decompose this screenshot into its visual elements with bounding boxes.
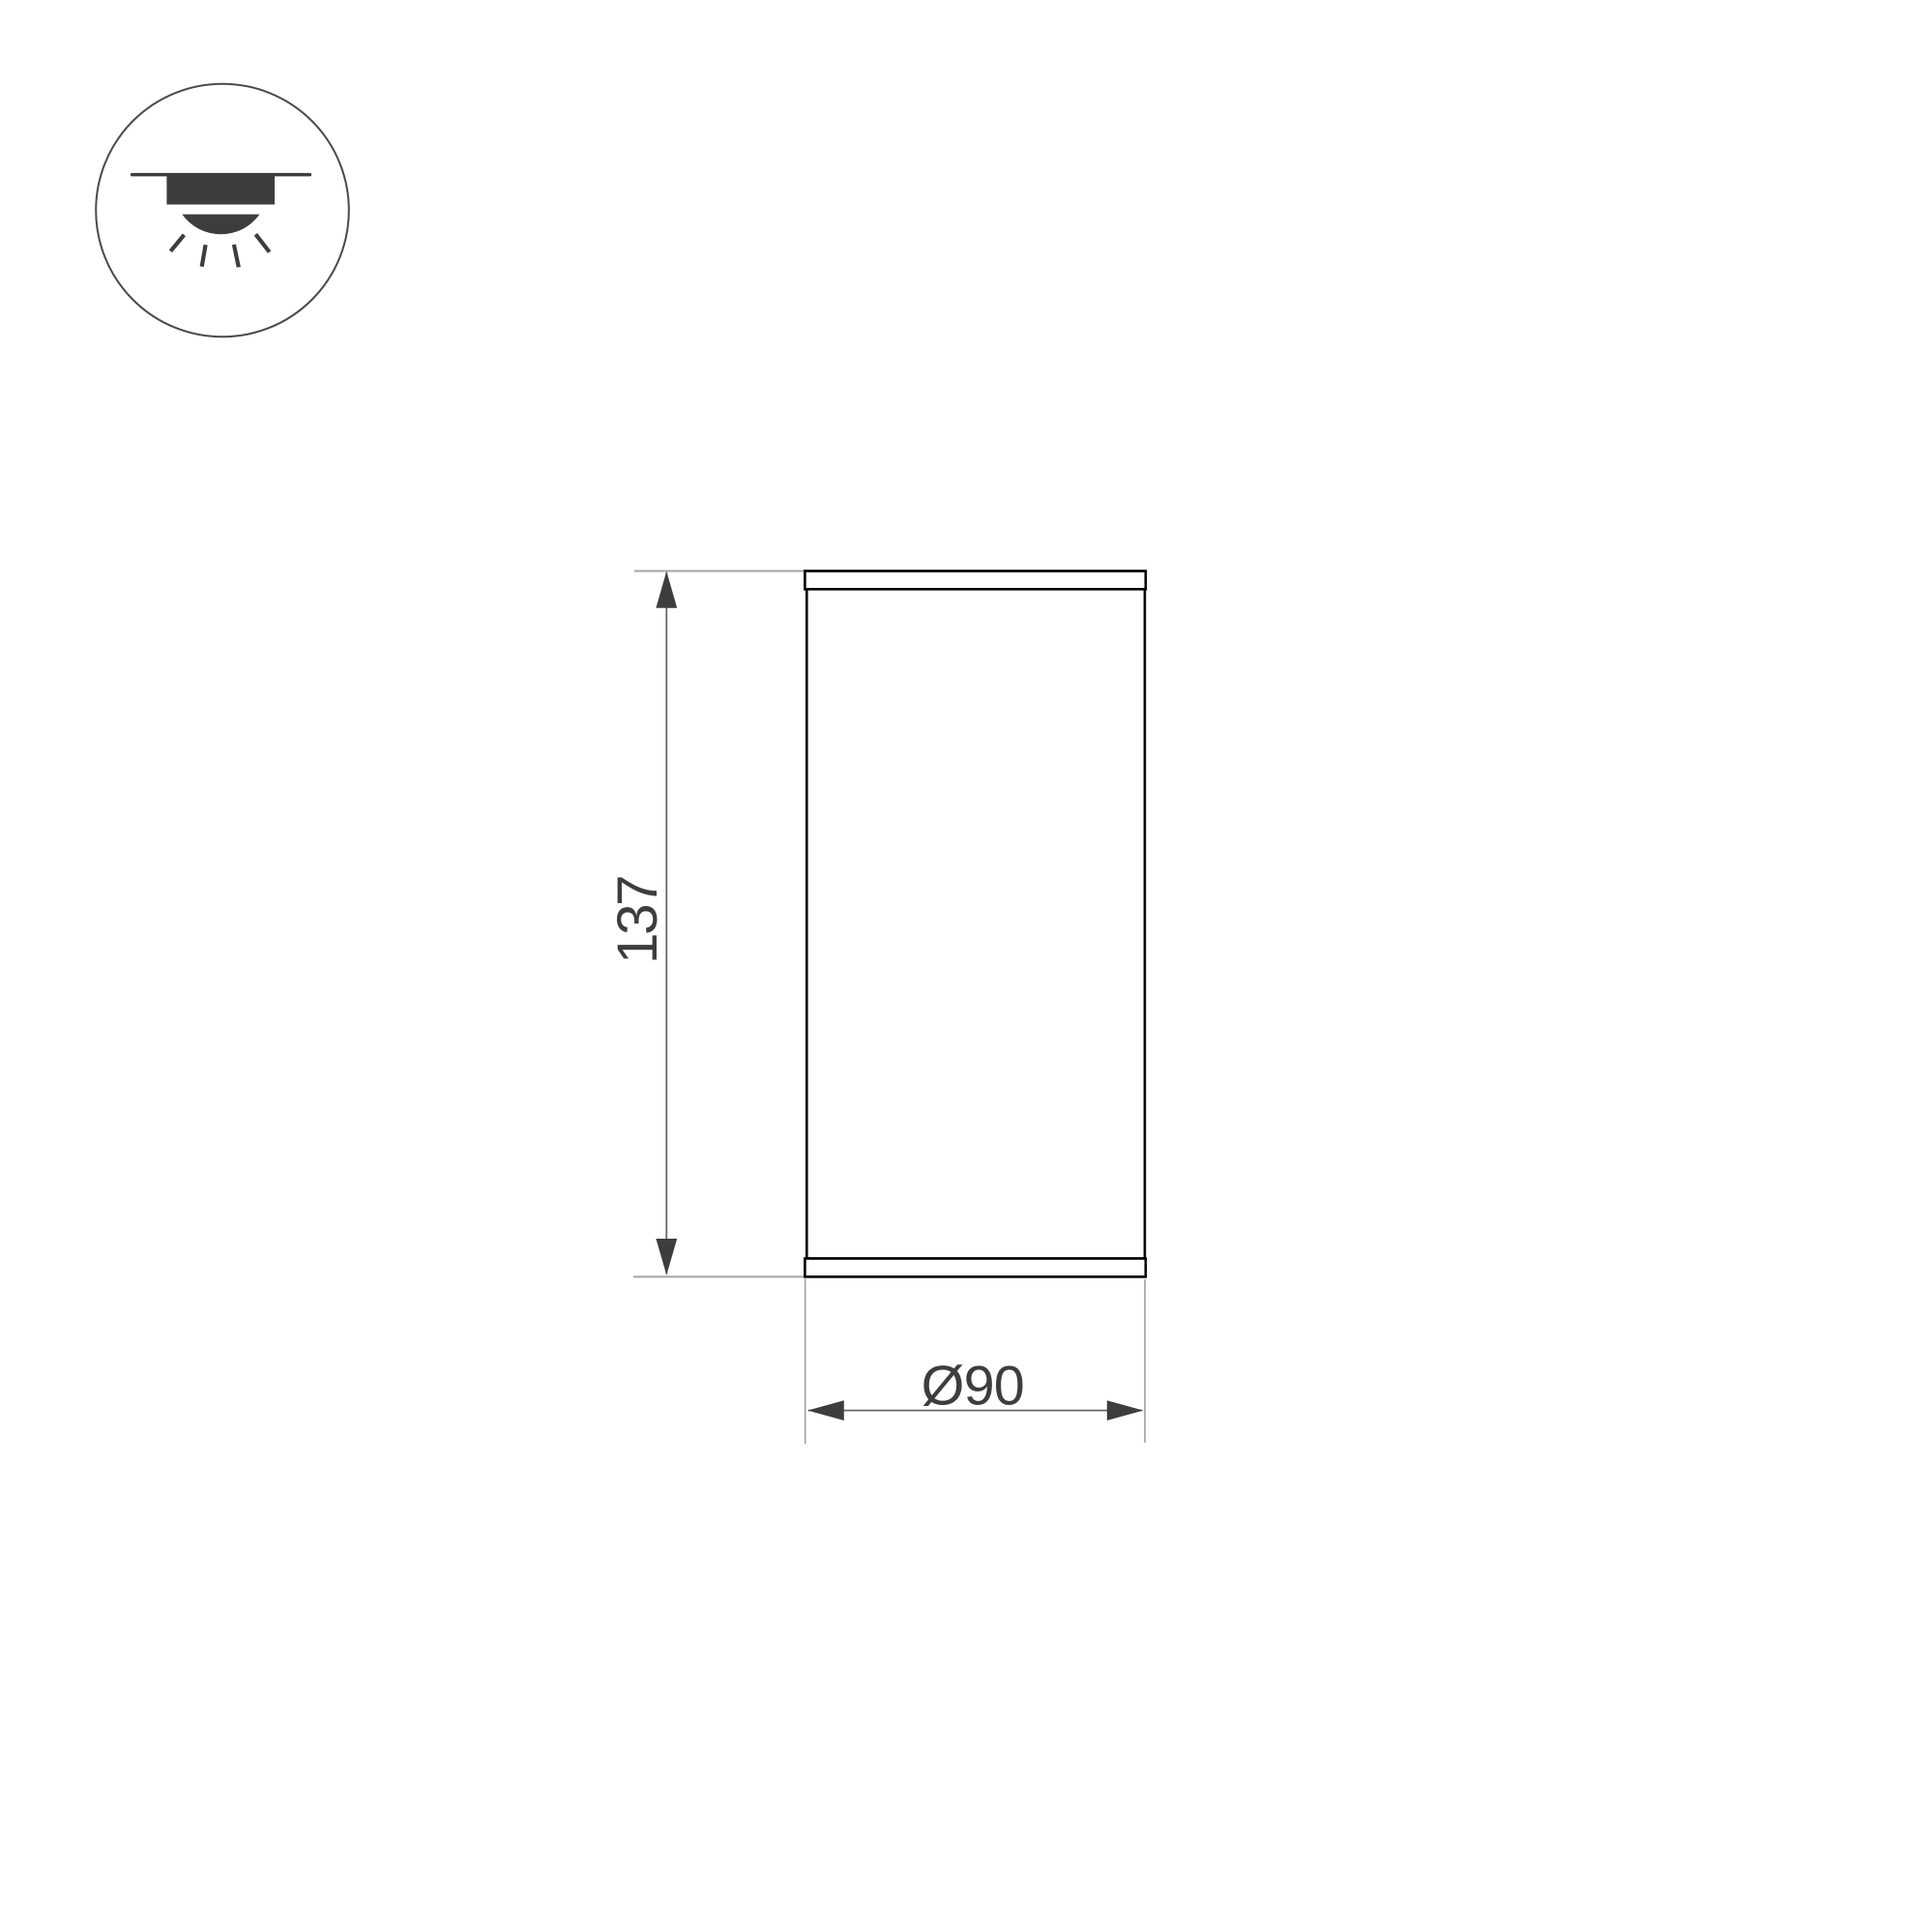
svg-text:Ø90: Ø90 bbox=[922, 1355, 1024, 1417]
svg-text:137: 137 bbox=[606, 877, 669, 964]
